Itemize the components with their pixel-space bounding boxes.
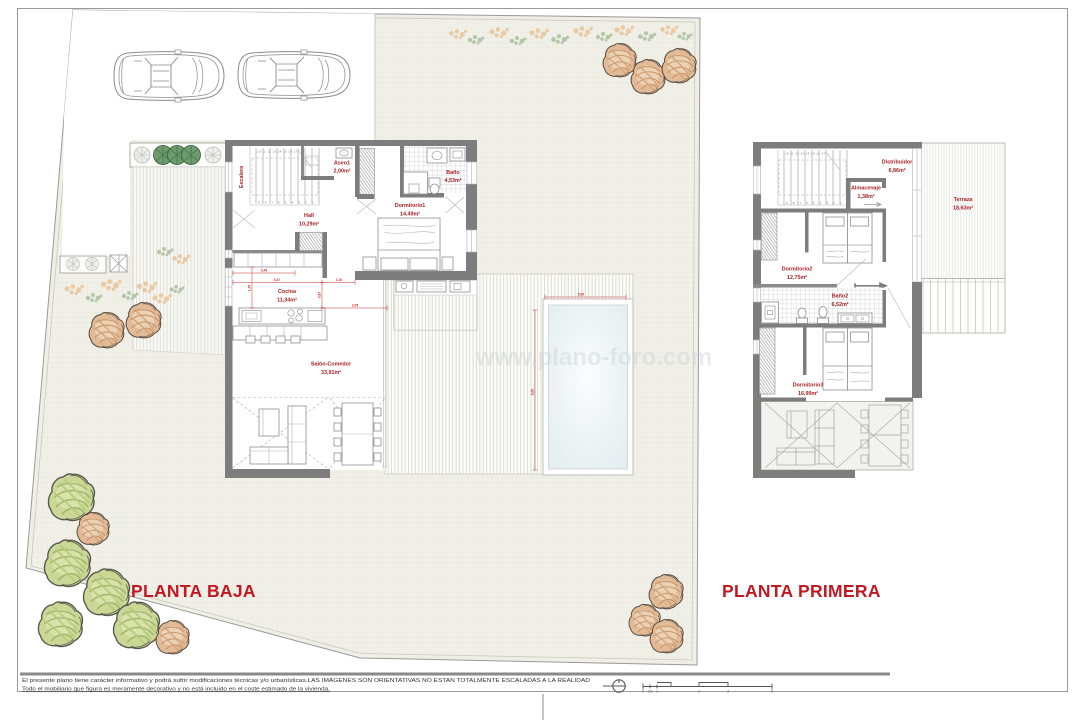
svg-text:9 8 7 6 5 4 3 2 1: 9 8 7 6 5 4 3 2 1 xyxy=(258,201,315,205)
svg-text:10 11 12 13 14 15 16 17: 10 11 12 13 14 15 16 17 xyxy=(257,150,297,154)
svg-text:Baño2: Baño2 xyxy=(832,294,848,300)
svg-text:16,99m²: 16,99m² xyxy=(798,391,818,397)
svg-text:1,10: 1,10 xyxy=(336,278,343,282)
svg-text:1,35: 1,35 xyxy=(248,285,252,292)
svg-text:1: 1 xyxy=(656,690,658,694)
svg-text:www.plano-foro.com: www.plano-foro.com xyxy=(475,344,712,371)
svg-text:0,87: 0,87 xyxy=(318,292,322,299)
svg-text:PLANTA BAJA: PLANTA BAJA xyxy=(131,581,256,601)
svg-text:10,29m²: 10,29m² xyxy=(299,222,319,228)
svg-text:Dormitorio1: Dormitorio1 xyxy=(395,203,426,209)
svg-text:11,34m²: 11,34m² xyxy=(277,298,297,304)
svg-text:5,00: 5,00 xyxy=(578,293,585,297)
svg-text:3,46: 3,46 xyxy=(261,269,268,273)
svg-text:3,47: 3,47 xyxy=(274,278,281,282)
svg-text:6,86m²: 6,86m² xyxy=(888,168,905,174)
svg-text:Cocina: Cocina xyxy=(278,289,297,295)
svg-text:Dormitorio3: Dormitorio3 xyxy=(793,383,824,389)
svg-text:9 8 7 6 5 4 3 2 1: 9 8 7 6 5 4 3 2 1 xyxy=(786,201,843,205)
svg-text:Dormitorio2: Dormitorio2 xyxy=(782,267,813,273)
svg-text:Salón-Comedor: Salón-Comedor xyxy=(311,362,352,368)
svg-text:3,05: 3,05 xyxy=(352,304,359,308)
svg-text:Terraza: Terraza xyxy=(954,197,974,203)
svg-text:5: 5 xyxy=(771,690,773,694)
svg-text:2,00m²: 2,00m² xyxy=(333,169,350,175)
svg-text:Hall: Hall xyxy=(304,213,314,219)
svg-text:8,00: 8,00 xyxy=(531,389,535,396)
svg-text:1,38m²: 1,38m² xyxy=(857,194,874,200)
svg-text:3: 3 xyxy=(727,690,729,694)
svg-text:18,63m²: 18,63m² xyxy=(953,206,973,212)
svg-text:El presente plano tiene carác: El presente plano tiene carácter informa… xyxy=(22,677,590,684)
svg-text:6,52m²: 6,52m² xyxy=(831,302,848,308)
svg-text:14,49m²: 14,49m² xyxy=(400,212,420,218)
svg-text:12,75m²: 12,75m² xyxy=(787,275,807,281)
svg-text:Escalera: Escalera xyxy=(239,165,245,188)
svg-text:Distribuidor: Distribuidor xyxy=(882,160,913,166)
svg-text:Todo el mobiliario que figura: Todo el mobiliario que figura es meramen… xyxy=(22,687,330,693)
svg-text:0: 0 xyxy=(642,690,644,694)
svg-text:2: 2 xyxy=(698,690,700,694)
svg-text:PLANTA PRIMERA: PLANTA PRIMERA xyxy=(722,581,881,601)
svg-text:Almacenaje: Almacenaje xyxy=(851,186,881,192)
svg-text:0,5: 0,5 xyxy=(648,690,653,694)
svg-text:4,53m²: 4,53m² xyxy=(444,178,461,184)
svg-text:Aseo1: Aseo1 xyxy=(334,161,350,167)
svg-text:33,91m²: 33,91m² xyxy=(321,370,341,376)
svg-text:10 11 12 13 14 15 16 17: 10 11 12 13 14 15 16 17 xyxy=(785,152,825,156)
svg-text:Baño: Baño xyxy=(446,170,460,176)
